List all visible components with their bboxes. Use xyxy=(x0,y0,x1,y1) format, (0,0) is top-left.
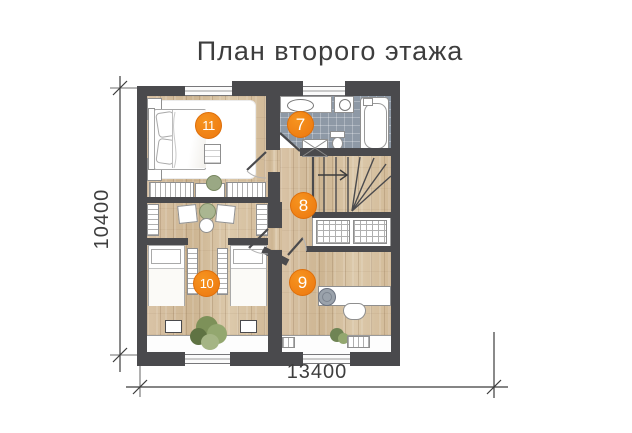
bedside-bench xyxy=(204,144,221,164)
wall-left xyxy=(137,86,147,366)
room-number: 10 xyxy=(200,277,213,290)
door-gap-floor xyxy=(266,228,282,250)
wall-top xyxy=(137,86,185,96)
wall-stairs xyxy=(312,212,391,218)
closet xyxy=(147,204,159,236)
wardrobe xyxy=(149,182,194,198)
dimension-width-label: 13400 xyxy=(257,361,377,384)
bathtub-inner xyxy=(364,103,387,149)
wall-top xyxy=(232,81,303,96)
bed-canopy-bar xyxy=(228,238,268,245)
closet xyxy=(256,204,268,236)
window xyxy=(185,86,232,96)
floor-plan-page: План второго этажа xyxy=(0,0,632,433)
desk-chair xyxy=(343,303,366,320)
radiator xyxy=(240,320,257,333)
room-number: 9 xyxy=(298,274,307,291)
wall-top xyxy=(345,81,400,96)
closet-shelves xyxy=(353,220,387,244)
wall-bedroom-hall xyxy=(268,172,280,202)
wall-children-hall xyxy=(268,202,282,228)
wall-bottom xyxy=(137,352,185,366)
wardrobe xyxy=(226,182,266,198)
page-title: План второго этажа xyxy=(0,36,632,67)
room-marker-11: 11 xyxy=(195,112,222,139)
sill-box xyxy=(282,337,295,348)
room-marker-10: 10 xyxy=(193,270,220,297)
window xyxy=(185,354,230,364)
plant-icon xyxy=(201,334,219,350)
sill-box xyxy=(347,336,370,348)
wall-right xyxy=(391,86,400,366)
wall-bedroom-bathroom xyxy=(266,96,280,150)
bed-blanket xyxy=(149,268,184,306)
bed-canopy-bar xyxy=(146,238,188,245)
closet-shelves xyxy=(316,220,350,244)
window xyxy=(303,86,345,96)
wall-children-study xyxy=(268,250,282,354)
room-number: 7 xyxy=(296,116,305,133)
room-number: 11 xyxy=(202,119,215,132)
room-number: 8 xyxy=(299,197,308,214)
wall-bathroom-hall xyxy=(300,148,391,156)
bed-blanket xyxy=(231,268,266,306)
radiator xyxy=(165,320,182,333)
stool xyxy=(199,218,214,233)
wall-hall-study xyxy=(306,246,391,252)
pillow xyxy=(151,249,181,264)
pillow xyxy=(233,249,263,264)
globe-inner xyxy=(322,292,332,302)
washer-drum xyxy=(339,99,351,111)
dimension-height-label: 10400 xyxy=(91,179,113,259)
room-marker-9: 9 xyxy=(289,269,316,296)
bath-faucet xyxy=(363,98,373,106)
vanity-cabinet xyxy=(215,204,236,224)
room-marker-8: 8 xyxy=(290,192,317,219)
room-marker-7: 7 xyxy=(287,111,314,138)
vanity-cabinet xyxy=(177,204,198,224)
wall-bedrooms xyxy=(147,197,268,203)
plant-icon xyxy=(206,175,222,191)
